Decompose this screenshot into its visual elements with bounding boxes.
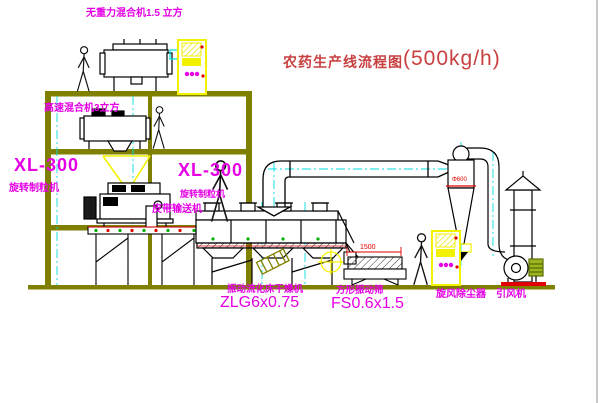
control-cabinet-2 (432, 231, 460, 285)
belt-conveyor (88, 227, 202, 285)
label-granulator-right-name: 旋转制粒机 (180, 190, 225, 199)
title-capacity: (500kg/h) (403, 47, 501, 70)
label-high-speed-mixer: 高速混合机3立方 (44, 104, 120, 114)
high-speed-mixer (80, 109, 150, 151)
dim-sieve-length: 1500 (360, 244, 376, 251)
label-sieve-model: FS0.6x1.5 (331, 296, 404, 312)
fluid-bed-dryer (196, 203, 358, 285)
worker-figure-1 (77, 47, 89, 92)
label-cyclone: 旋风除尘器 (436, 290, 486, 300)
label-belt-conveyor: 皮带输送机 (152, 205, 202, 215)
label-fan: 引风机 (496, 290, 526, 300)
worker-figure-2 (153, 107, 164, 149)
label-dryer-model: ZLG6x0.75 (220, 295, 299, 311)
window-edge-line (596, 0, 598, 403)
gravity-free-mixer (100, 39, 185, 91)
label-gravity-free-mixer: 无重力混合机1.5 立方 (86, 9, 183, 19)
label-granulator-left-model: XL-300 (14, 156, 79, 174)
title-text: 农药生产线流程图 (283, 54, 403, 70)
label-granulator-left-name: 旋转制粒机 (9, 184, 59, 194)
worker-figure-4 (414, 234, 427, 285)
label-granulator-right-model: XL-300 (178, 161, 243, 179)
dim-cyclone-diameter: Φ600 (452, 177, 467, 183)
flow-diagram-canvas: 农药生产线流程图(500kg/h) 无重力混合机1.5 立方 高速混合机3立方 … (0, 0, 600, 403)
control-cabinet-1 (178, 40, 206, 94)
diagram-title: 农药生产线流程图(500kg/h) (283, 49, 501, 73)
